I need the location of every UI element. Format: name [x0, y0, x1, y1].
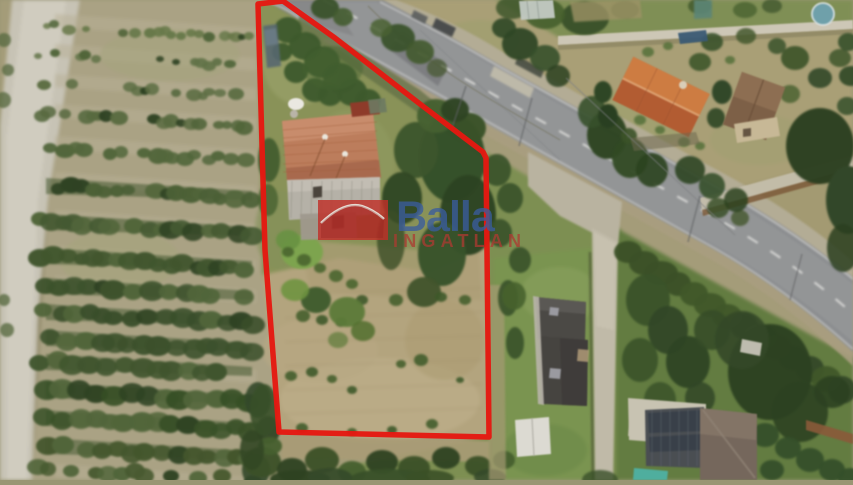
svg-text:INGATLAN: INGATLAN: [393, 231, 526, 251]
